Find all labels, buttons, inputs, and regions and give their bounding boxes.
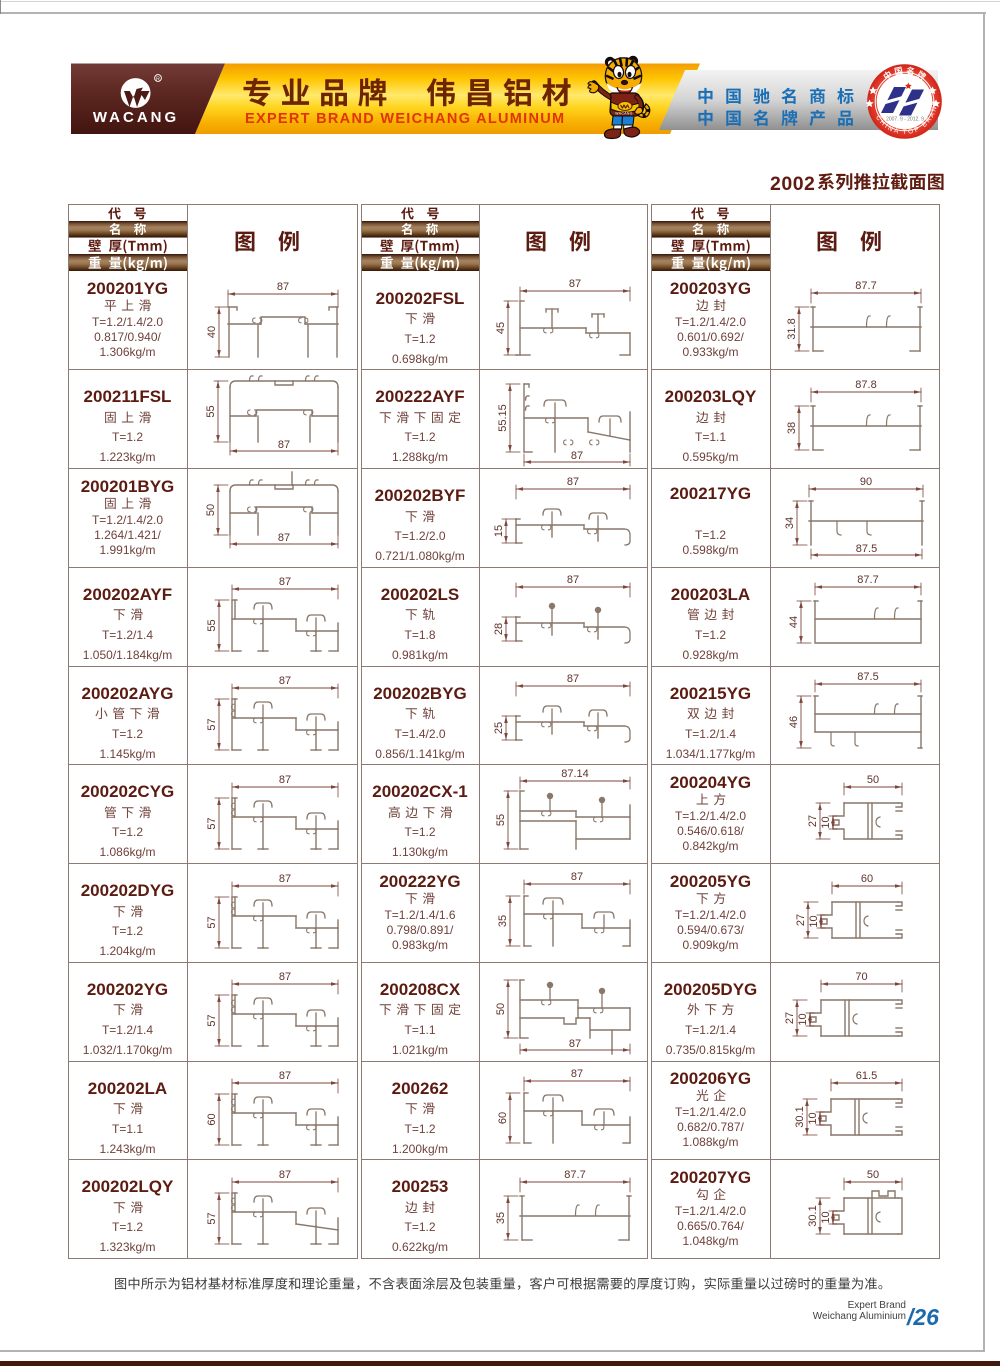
svg-text:87.8: 87.8 bbox=[855, 379, 876, 391]
svg-text:87: 87 bbox=[567, 476, 579, 488]
svg-text:87.14: 87.14 bbox=[561, 768, 589, 780]
svg-text:87: 87 bbox=[279, 1169, 291, 1181]
svg-text:87.7: 87.7 bbox=[564, 1169, 585, 1181]
svg-text:87: 87 bbox=[279, 774, 291, 786]
svg-text:45: 45 bbox=[495, 322, 507, 334]
svg-text:30.1: 30.1 bbox=[807, 1205, 819, 1226]
svg-text:55: 55 bbox=[206, 620, 218, 632]
svg-text:34: 34 bbox=[784, 516, 796, 528]
svg-text:50: 50 bbox=[205, 503, 217, 515]
svg-text:44: 44 bbox=[788, 616, 800, 628]
svg-text:87.7: 87.7 bbox=[857, 574, 878, 586]
svg-text:61.5: 61.5 bbox=[856, 1070, 877, 1082]
svg-text:31.8: 31.8 bbox=[786, 318, 798, 339]
svg-text:27: 27 bbox=[784, 1012, 796, 1024]
svg-text:87: 87 bbox=[277, 281, 289, 293]
svg-text:28: 28 bbox=[493, 623, 505, 635]
svg-text:60: 60 bbox=[497, 1112, 509, 1124]
svg-text:30.1: 30.1 bbox=[794, 1106, 806, 1127]
svg-text:2007. 9 - 2012. 9: 2007. 9 - 2012. 9 bbox=[886, 117, 924, 123]
svg-text:15: 15 bbox=[493, 524, 505, 536]
svg-text:87: 87 bbox=[571, 450, 583, 462]
svg-text:70: 70 bbox=[855, 971, 867, 983]
svg-text:87: 87 bbox=[279, 971, 291, 983]
svg-text:27: 27 bbox=[795, 913, 807, 925]
svg-text:WACANG: WACANG bbox=[615, 112, 633, 116]
svg-text:87: 87 bbox=[279, 675, 291, 687]
svg-text:27: 27 bbox=[807, 815, 819, 827]
svg-text:38: 38 bbox=[786, 422, 798, 434]
svg-text:87.7: 87.7 bbox=[855, 280, 876, 292]
svg-text:87: 87 bbox=[279, 576, 291, 588]
svg-text:50: 50 bbox=[867, 1169, 879, 1181]
svg-text:25: 25 bbox=[493, 722, 505, 734]
svg-text:87: 87 bbox=[278, 439, 290, 451]
svg-text:57: 57 bbox=[206, 1015, 218, 1027]
svg-text:87: 87 bbox=[569, 1038, 581, 1050]
svg-text:87.5: 87.5 bbox=[856, 543, 877, 555]
svg-text:55: 55 bbox=[205, 405, 217, 417]
svg-text:35: 35 bbox=[497, 914, 509, 926]
svg-text:40: 40 bbox=[206, 326, 218, 338]
svg-text:57: 57 bbox=[206, 817, 218, 829]
svg-text:10: 10 bbox=[808, 915, 820, 927]
svg-text:60: 60 bbox=[206, 1113, 218, 1125]
svg-text:R: R bbox=[156, 76, 160, 82]
svg-text:87: 87 bbox=[278, 532, 290, 544]
svg-text:87: 87 bbox=[571, 871, 583, 883]
svg-text:87: 87 bbox=[279, 873, 291, 885]
svg-text:57: 57 bbox=[206, 916, 218, 928]
svg-text:87: 87 bbox=[571, 1068, 583, 1080]
svg-text:87: 87 bbox=[567, 574, 579, 586]
svg-text:10: 10 bbox=[807, 1112, 819, 1124]
svg-text:55: 55 bbox=[495, 814, 507, 826]
svg-text:90: 90 bbox=[860, 476, 872, 488]
svg-text:87: 87 bbox=[569, 278, 581, 290]
svg-text:57: 57 bbox=[206, 1212, 218, 1224]
svg-text:50: 50 bbox=[867, 774, 879, 786]
svg-text:10: 10 bbox=[820, 816, 832, 828]
svg-text:46: 46 bbox=[788, 716, 800, 728]
svg-text:35: 35 bbox=[495, 1212, 507, 1224]
svg-text:10: 10 bbox=[820, 1211, 832, 1223]
svg-text:87: 87 bbox=[567, 673, 579, 685]
svg-text:10: 10 bbox=[797, 1014, 809, 1026]
svg-text:55.15: 55.15 bbox=[497, 404, 509, 432]
svg-text:50: 50 bbox=[495, 1003, 507, 1015]
svg-text:57: 57 bbox=[206, 718, 218, 730]
svg-text:87.5: 87.5 bbox=[857, 671, 878, 683]
svg-text:87: 87 bbox=[279, 1070, 291, 1082]
svg-text:60: 60 bbox=[861, 873, 873, 885]
